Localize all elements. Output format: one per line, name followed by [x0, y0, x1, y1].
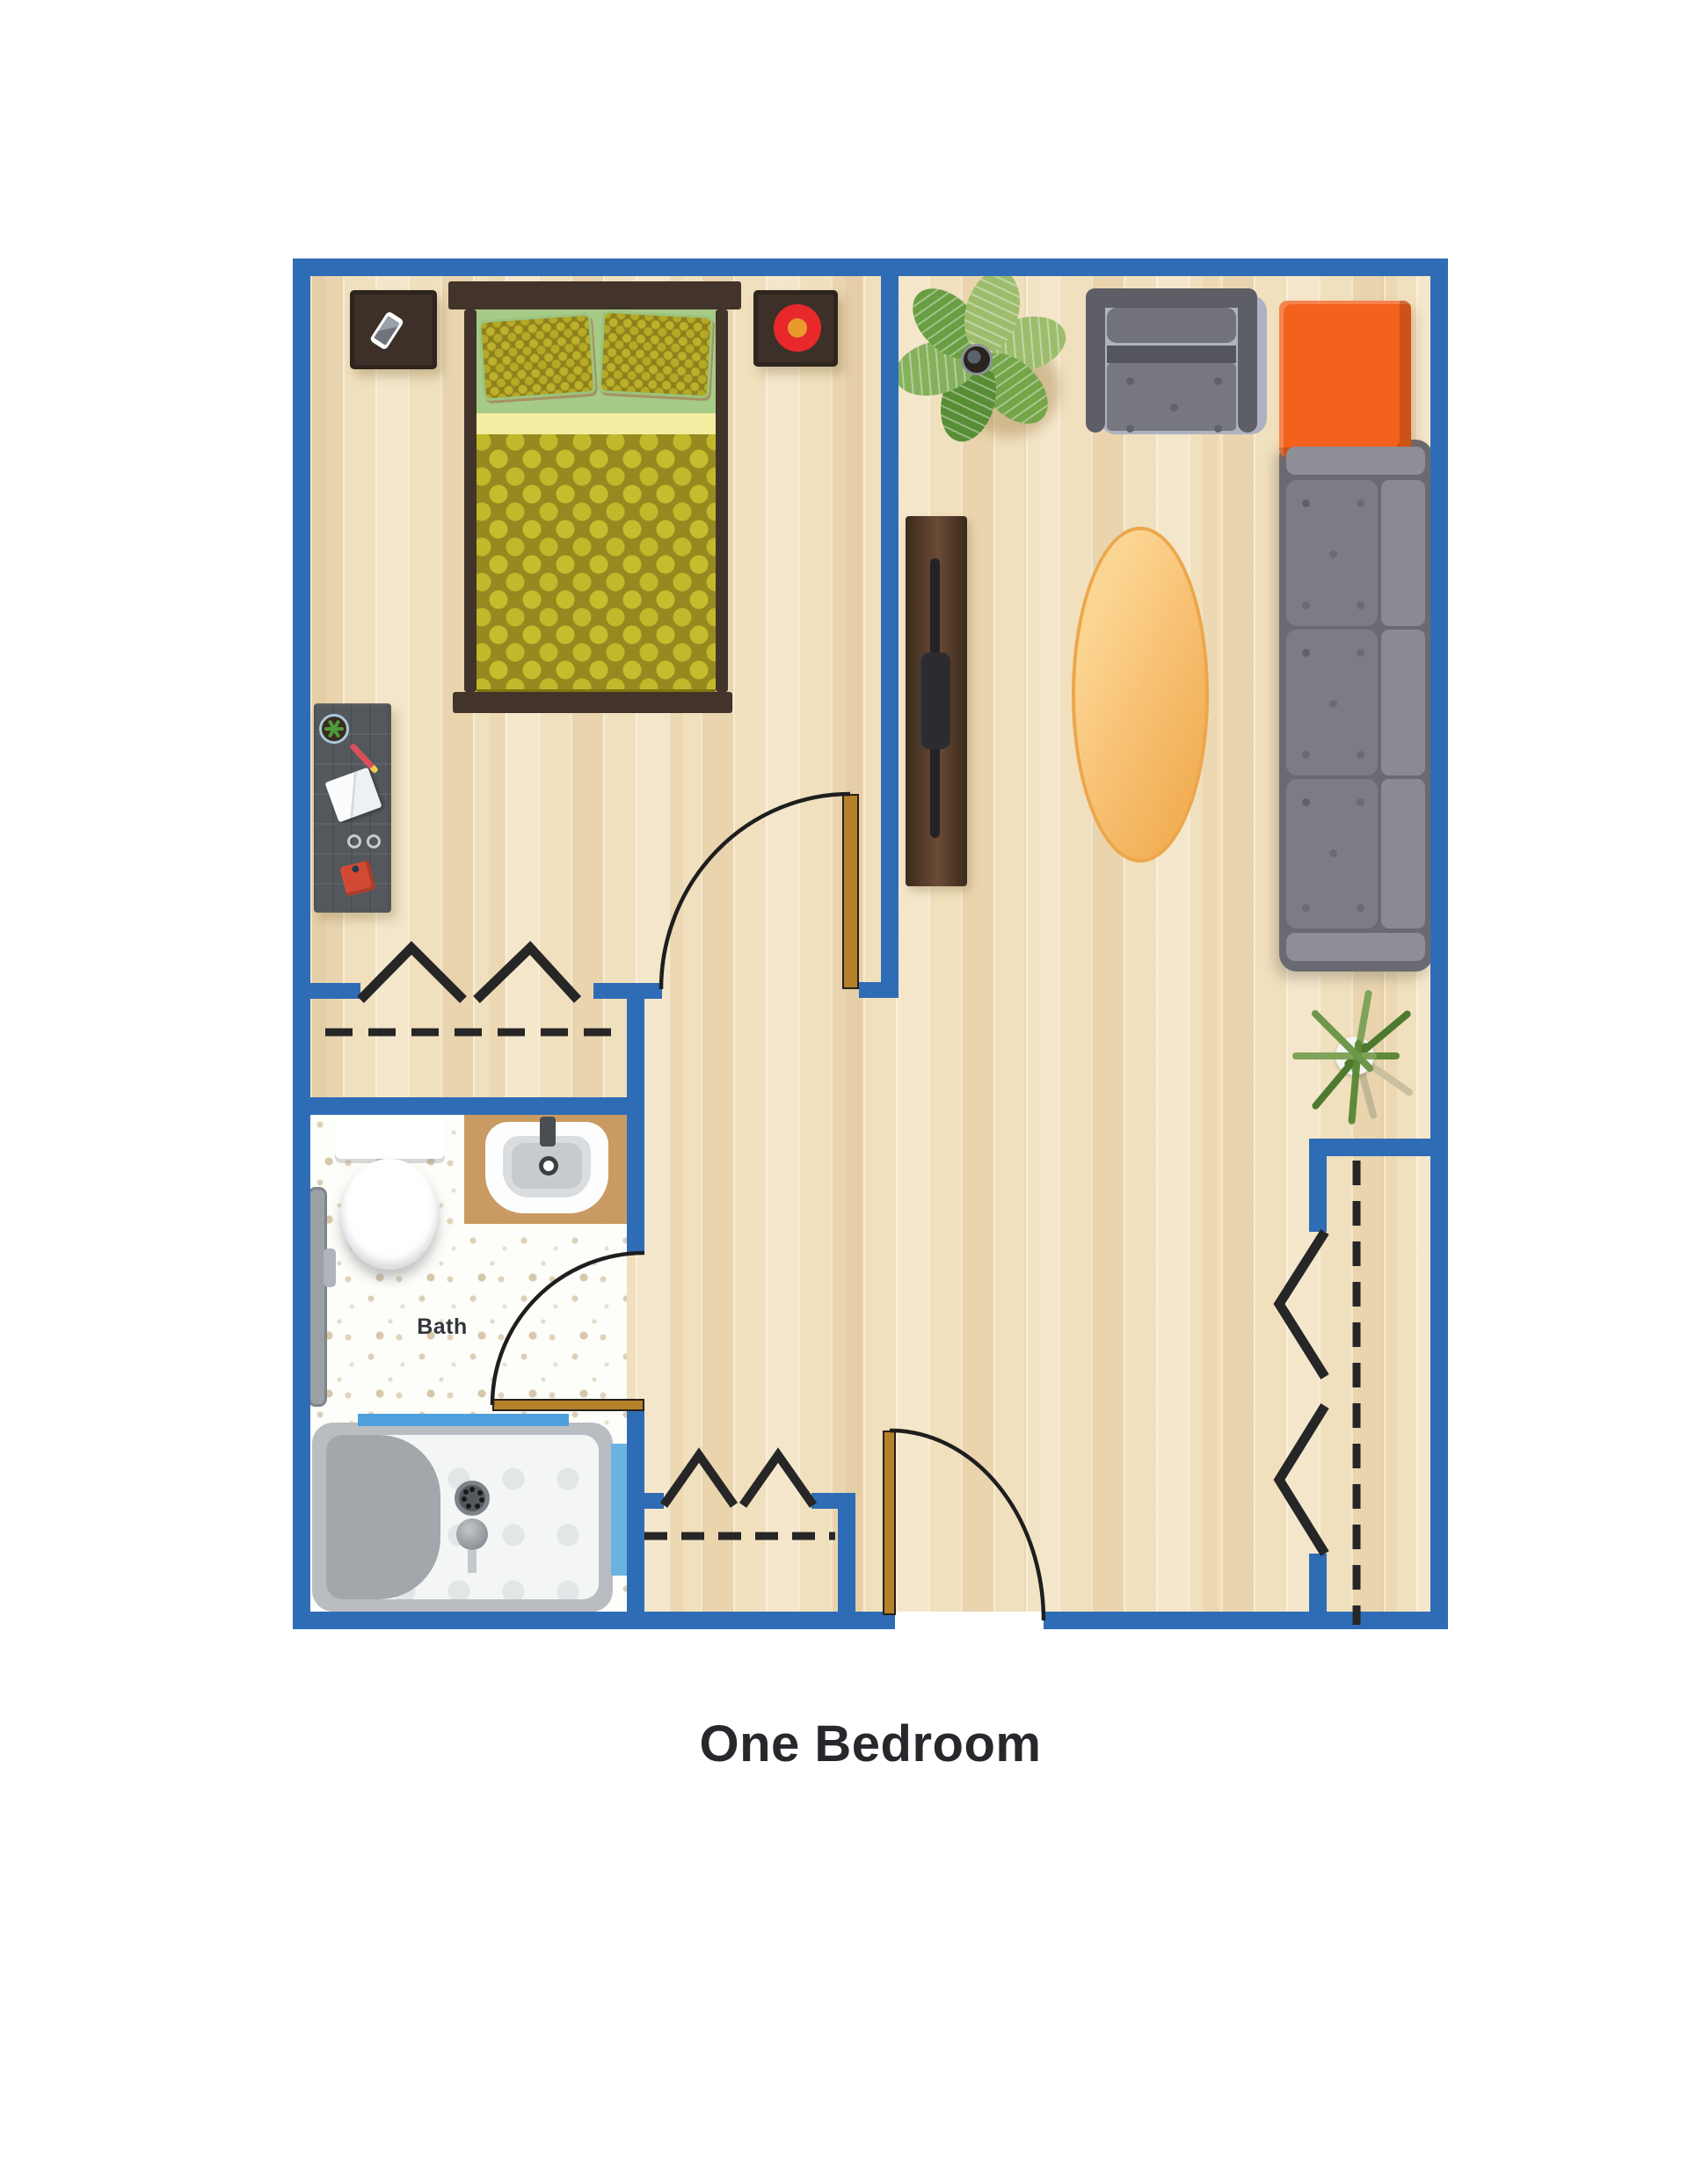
wall-right-closet-inner-lower	[1309, 1554, 1327, 1612]
bed-rail-right	[716, 309, 728, 692]
armchair-arm-left	[1086, 288, 1105, 433]
wall-left	[293, 258, 310, 1629]
sofa-seat-cushion	[1286, 480, 1378, 626]
wall-top	[293, 258, 1448, 276]
side-table-orange	[1279, 301, 1411, 457]
armchair-back-band	[1086, 288, 1257, 308]
bed-footboard	[453, 692, 732, 713]
wall-right-closet-inner-upper	[1309, 1156, 1327, 1232]
sofa-seat-cushion	[1286, 779, 1378, 928]
sofa-seat-cushion	[1286, 630, 1378, 775]
armchair-back-cushion	[1107, 308, 1236, 343]
entry-door	[883, 1431, 896, 1615]
wall-bedroom-closet-stub	[306, 983, 360, 999]
bathtub-seat	[326, 1435, 440, 1599]
toilet-tank	[335, 1120, 445, 1159]
bathtub-accent-right	[611, 1444, 627, 1576]
bed-sheet-fold	[477, 413, 716, 434]
grab-bar-handle	[324, 1249, 336, 1287]
bathtub-accent-top	[358, 1414, 569, 1426]
tv-stand-icon	[920, 652, 950, 749]
sofa-armrest-bottom	[1286, 933, 1425, 961]
sofa-back-cushion	[1381, 779, 1425, 928]
desk-plant-icon	[319, 714, 349, 744]
sofa-back-cushion	[1381, 480, 1425, 626]
wall-bathroom-right-upper	[627, 998, 644, 1253]
wall-entry-closet-stub-left	[633, 1493, 664, 1509]
rosemary-plant	[1284, 986, 1425, 1126]
wall-entry-closet-right	[838, 1509, 855, 1612]
armchair-arm-right	[1238, 288, 1257, 433]
armchair-gap	[1107, 346, 1236, 363]
sink-drain-icon	[539, 1156, 558, 1176]
bed-blanket	[477, 434, 716, 692]
plan-title: One Bedroom	[293, 1714, 1448, 1773]
bed-headboard	[448, 281, 741, 309]
bathtub-knob-stem	[468, 1550, 477, 1573]
pillow-left	[478, 313, 596, 402]
wall-bedroom-divider	[881, 276, 899, 998]
glasses-icon	[346, 834, 384, 850]
bed-rail-left	[464, 309, 477, 692]
bedroom-door	[842, 794, 859, 989]
wall-bottom-left	[293, 1612, 895, 1629]
wall-bedroom-door-stub	[593, 983, 662, 999]
bathtub-knob-icon	[456, 1518, 488, 1550]
sofa-armrest-top	[1286, 447, 1425, 475]
bathtub-drain-icon	[455, 1481, 490, 1516]
grab-bar	[308, 1187, 327, 1407]
armchair-seat	[1107, 363, 1236, 431]
bath-room-label: Bath	[381, 1309, 504, 1344]
wall-bottom-right	[1044, 1612, 1448, 1629]
leafy-plant	[892, 275, 1059, 442]
toilet-bowl	[341, 1159, 438, 1270]
decor-plate	[774, 304, 821, 352]
wall-right	[1430, 258, 1448, 1629]
bathroom-door	[492, 1399, 644, 1411]
oval-rug	[1072, 527, 1209, 863]
wall-right-closet-top	[1309, 1139, 1448, 1156]
wall-bathroom-top	[293, 1097, 644, 1115]
wall-divider-foot	[859, 982, 899, 998]
pillow-right	[599, 310, 714, 398]
floor-plan: Bath	[293, 258, 1448, 1629]
faucet-icon	[540, 1117, 556, 1147]
sofa-back-cushion	[1381, 630, 1425, 775]
wall-entry-closet-post	[811, 1493, 855, 1509]
